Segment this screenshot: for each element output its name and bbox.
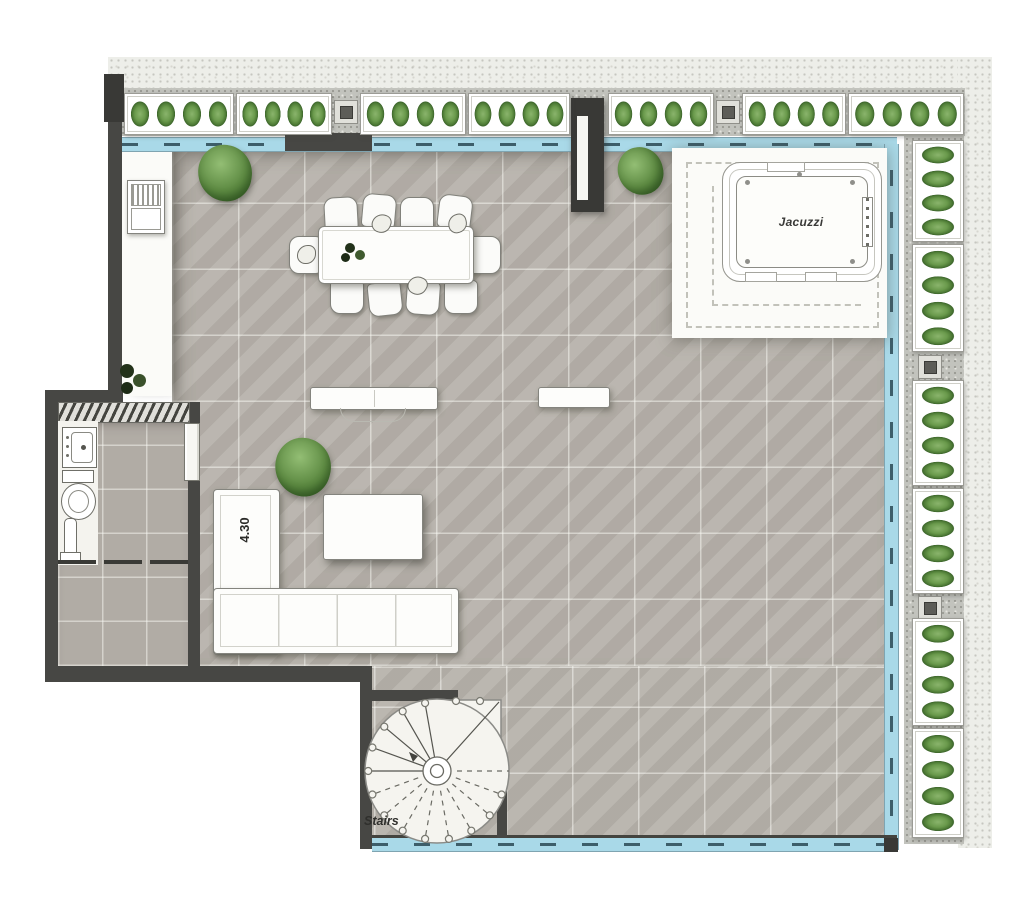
sofa-seat-horizontal (213, 588, 459, 654)
shower-partition (58, 560, 188, 564)
bathroom-door (184, 423, 200, 481)
floor-plan: Jacuzzi 4.30 (0, 0, 1024, 913)
column-pillar-inner (577, 116, 588, 200)
sofa-dimension-label: 4.30 (214, 508, 274, 552)
railing-post (918, 355, 942, 379)
jacuzzi-headrest (805, 272, 837, 282)
sofa-dimension-text: 4.30 (237, 517, 252, 542)
jacuzzi-control-panel (862, 197, 873, 247)
planter-box (912, 244, 964, 352)
bench-arc (340, 408, 406, 422)
jacuzzi-jet (797, 172, 802, 177)
bbq-grill-unit (127, 180, 165, 234)
wall-top-bar (285, 133, 372, 151)
planter-box (912, 380, 964, 486)
planter-box (912, 728, 964, 838)
sink-knob (66, 454, 69, 457)
potted-plant (120, 364, 134, 378)
jacuzzi-jet (850, 180, 855, 185)
wall-left (108, 74, 122, 396)
planter-box (236, 93, 332, 135)
planter-box (848, 93, 964, 135)
sink-drain (81, 445, 86, 450)
toilet-bowl-inner (68, 490, 89, 513)
jacuzzi-jet (745, 180, 750, 185)
planter-box (360, 93, 466, 135)
planter-box (124, 93, 234, 135)
potted-plant (121, 382, 133, 394)
stairs-label: Stairs (364, 814, 399, 828)
wall-bathroom-south (45, 666, 372, 682)
jacuzzi-headrest (745, 272, 777, 282)
louver-wall (58, 402, 190, 423)
railing-post (334, 100, 358, 124)
potted-plant (133, 374, 146, 387)
jacuzzi-headrest (767, 162, 805, 172)
table-centerpiece (341, 253, 350, 262)
toilet-tank (62, 470, 94, 483)
railing-post (918, 596, 942, 620)
railing-post (716, 100, 740, 124)
toilet-bowl (61, 483, 96, 520)
planter-box (912, 488, 964, 594)
wall-corner-cap (104, 74, 124, 122)
planter-box (742, 93, 846, 135)
railing-corner-block (884, 838, 898, 852)
jacuzzi-jet (745, 259, 750, 264)
stair-newel-inner (431, 765, 444, 778)
sofa-cushion-line (220, 594, 452, 647)
sink (62, 427, 97, 468)
table-centerpiece (345, 243, 355, 253)
wall-bathroom-east-lower (188, 478, 200, 668)
planter-box (608, 93, 714, 135)
dining-chair (330, 280, 364, 314)
dining-chair (366, 280, 403, 317)
grill-cabinet (131, 208, 161, 230)
jacuzzi-jet (850, 259, 855, 264)
table-centerpiece (355, 250, 365, 260)
coffee-table (323, 494, 423, 560)
planter-box (912, 618, 964, 726)
bench-divider (374, 390, 375, 407)
dining-chair (444, 280, 478, 314)
bench (538, 387, 610, 408)
sink-knob (66, 436, 69, 439)
planter-box (912, 140, 964, 242)
planter-box (468, 93, 570, 135)
bench (310, 387, 438, 410)
jacuzzi-label: Jacuzzi (746, 215, 856, 229)
wall-bathroom-west (45, 390, 58, 682)
grill-grate (131, 184, 161, 206)
sink-knob (66, 445, 69, 448)
